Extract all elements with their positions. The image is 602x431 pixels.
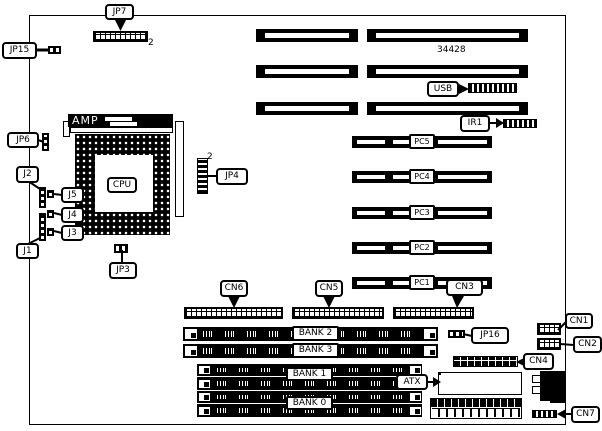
heatsink-brand: AMP	[68, 114, 99, 127]
pci-slot-label: PC5	[409, 134, 435, 149]
j2-callout: J2	[16, 166, 39, 183]
pci-slot-label: PC2	[409, 240, 435, 255]
jp4-header	[197, 158, 208, 194]
heatsink-base	[70, 127, 173, 133]
pci-slot-label: PC1	[409, 275, 435, 290]
j5-callout: J5	[61, 187, 84, 203]
isa-slot-4	[367, 65, 528, 78]
keyboard-connector	[540, 371, 566, 401]
isa-slot-1	[256, 29, 358, 42]
cn6-header	[184, 307, 283, 319]
slot-opening	[265, 33, 349, 38]
j3-callout: J3	[61, 225, 84, 241]
jp15-jumper	[48, 46, 61, 54]
board-part-number: 34428	[437, 46, 466, 55]
cn4-callout: CN4	[523, 353, 554, 370]
cn4-header	[453, 356, 518, 367]
atx-callout: ATX	[396, 374, 428, 390]
j1-callout: J1	[16, 243, 39, 259]
slot-opening	[376, 33, 519, 38]
j1-header	[39, 213, 46, 241]
motherboard-diagram: 34428 PC5 PC4 PC3 PC2 PC1 AMP CPU 2 2	[0, 0, 602, 431]
cn5-callout: CN5	[315, 280, 343, 297]
isa-slot-6	[367, 102, 528, 115]
cn2-header	[537, 338, 561, 350]
heatsink-mark	[105, 117, 132, 121]
jp4-pin2-marker: 2	[207, 153, 213, 162]
cn1-callout: CN1	[565, 313, 593, 329]
j3-jumper	[47, 228, 54, 236]
at-power-connector	[430, 398, 522, 419]
socket-latch	[423, 345, 437, 357]
jp7-pin2-marker: 2	[148, 39, 154, 48]
pci-slot-label: PC4	[409, 169, 435, 184]
cn7-header	[532, 410, 557, 418]
cn5-header	[292, 307, 384, 319]
j2-header	[39, 187, 46, 208]
cn1-header	[537, 323, 561, 335]
slot-opening	[376, 69, 519, 74]
socket-latch	[198, 406, 211, 416]
ir1-callout: IR1	[460, 115, 490, 132]
pci-slot-pc5: PC5	[352, 136, 492, 148]
cn2-callout: CN2	[573, 336, 602, 353]
usb-header	[468, 83, 517, 93]
jp16-jumper	[448, 330, 465, 338]
pci-slot-pc4: PC4	[352, 171, 492, 183]
slot-opening	[265, 69, 349, 74]
socket-latch	[423, 328, 437, 340]
pci-slot-pc3: PC3	[352, 207, 492, 219]
isa-slot-5	[256, 102, 358, 115]
pci-slot-pc2: PC2	[352, 242, 492, 254]
slot-opening	[265, 106, 349, 111]
socket-latch	[198, 365, 211, 375]
connector-notch	[532, 375, 541, 383]
socket-latch	[409, 406, 422, 416]
slot-opening	[376, 106, 519, 111]
connector-notch	[532, 386, 541, 394]
socket-latch	[409, 392, 422, 402]
pci-slot-label: PC3	[409, 205, 435, 220]
bank2-label: BANK 2	[292, 326, 339, 341]
keyboard-connector-step	[550, 398, 566, 403]
j5-jumper	[47, 190, 54, 198]
j4-jumper	[47, 210, 54, 218]
heatsink-mark	[110, 122, 137, 126]
j4-callout: J4	[61, 207, 84, 223]
jp16-callout: JP16	[471, 327, 509, 344]
cn3-header	[393, 307, 474, 319]
bank0-label: BANK 0	[286, 396, 333, 410]
jp3-callout: JP3	[109, 262, 137, 279]
jp7-callout: JP7	[105, 4, 134, 20]
jp15-callout: JP15	[2, 42, 37, 59]
socket-latch	[184, 328, 198, 340]
isa-slot-2	[367, 29, 528, 42]
jp6-jumper	[42, 133, 49, 151]
jp6-callout: JP6	[7, 132, 39, 148]
socket-latch	[184, 345, 198, 357]
bank3-label: BANK 3	[292, 343, 339, 358]
cn7-callout: CN7	[571, 406, 600, 423]
cn3-callout: CN3	[446, 279, 483, 296]
bank1-label: BANK 1	[286, 367, 333, 381]
jp4-callout: JP4	[216, 168, 248, 185]
jp3-jumper	[114, 244, 128, 253]
atx-power-connector	[438, 372, 522, 395]
ir1-header	[503, 119, 537, 128]
cn6-callout: CN6	[220, 280, 248, 297]
socket-latch	[198, 392, 211, 402]
socket-latch	[198, 379, 211, 389]
usb-callout: USB	[427, 81, 459, 97]
jp7-header	[93, 31, 148, 42]
isa-slot-3	[256, 65, 358, 78]
cpu-retention-bar	[175, 121, 184, 217]
cpu-label: CPU	[107, 177, 137, 193]
